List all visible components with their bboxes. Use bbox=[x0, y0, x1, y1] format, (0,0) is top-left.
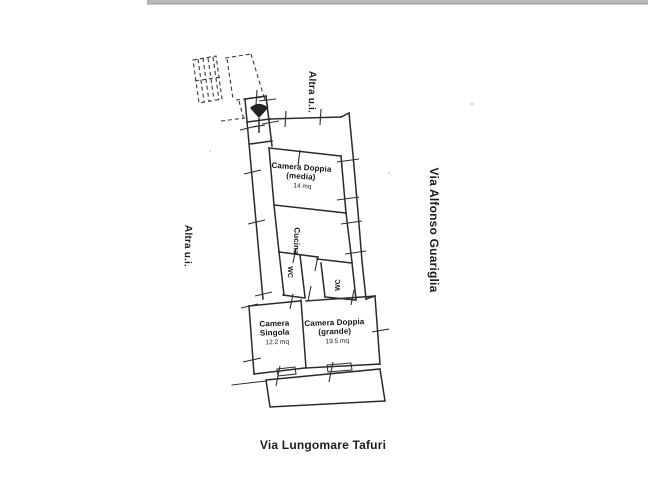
wall-building-top bbox=[270, 117, 341, 119]
wall-wc2-right bbox=[352, 263, 356, 299]
wall-wc1-left bbox=[279, 252, 284, 295]
wall-ground-line bbox=[232, 381, 266, 385]
wall-wc2-left bbox=[321, 263, 325, 297]
room-label-camera-doppia-media: Camera Doppia (media) 14 mq bbox=[270, 155, 337, 192]
room-label-wc1: WC bbox=[286, 266, 293, 278]
wall-media-bottom bbox=[274, 205, 346, 213]
scanned-floorplan-page: Camera Doppia (media) 14 mq Cucina WC WC… bbox=[0, 0, 648, 492]
door-fan-icon bbox=[250, 104, 268, 133]
wall-media-top bbox=[269, 148, 341, 156]
wall-singola-left bbox=[249, 306, 254, 374]
window-door-ticks bbox=[240, 90, 389, 386]
wall-wc2-top bbox=[317, 259, 352, 263]
adjacent-unit-label-left: Altra u.i. bbox=[182, 225, 194, 267]
scan-artifact-band bbox=[147, 0, 648, 4]
stair-hatch-dashed bbox=[193, 56, 222, 103]
wall-room-divider bbox=[301, 300, 306, 368]
wall-media-right bbox=[341, 156, 346, 213]
wall-entry-divider-b bbox=[250, 141, 272, 144]
room-label-camera-doppia-grande: Camera Doppia (grande) 19.5 mq bbox=[304, 311, 370, 346]
wall-entry-right bbox=[266, 96, 272, 146]
wall-right-outer bbox=[349, 113, 366, 299]
street-label-right: Via Alfonso Guariglia bbox=[427, 168, 441, 293]
adjacent-unit-label-top: Altra u.i. bbox=[306, 71, 318, 113]
wall-wc1-bottom bbox=[283, 295, 305, 298]
wall-grande-right bbox=[375, 296, 380, 364]
wall-cucina-right bbox=[346, 213, 352, 262]
wall-grande-bottom bbox=[306, 364, 380, 368]
room-label-wc2: WC bbox=[335, 279, 342, 291]
wall-right-top-stub bbox=[341, 113, 349, 117]
wall-balcony bbox=[266, 369, 385, 407]
room-label-cucina: Cucina bbox=[292, 227, 302, 255]
wall-entry-top bbox=[245, 96, 266, 99]
room-label-camera-singola: Camera Singola 12.2 mq bbox=[259, 312, 295, 346]
wall-left-strip bbox=[245, 99, 263, 299]
wall-wc1-right bbox=[300, 255, 305, 297]
wall-singola-top bbox=[249, 301, 300, 306]
floor-plan-svg: Camera Doppia (media) 14 mq Cucina WC WC… bbox=[0, 0, 648, 492]
street-label-bottom: Via Lungomare Tafuri bbox=[260, 438, 386, 452]
wall-grande-top bbox=[306, 296, 375, 301]
